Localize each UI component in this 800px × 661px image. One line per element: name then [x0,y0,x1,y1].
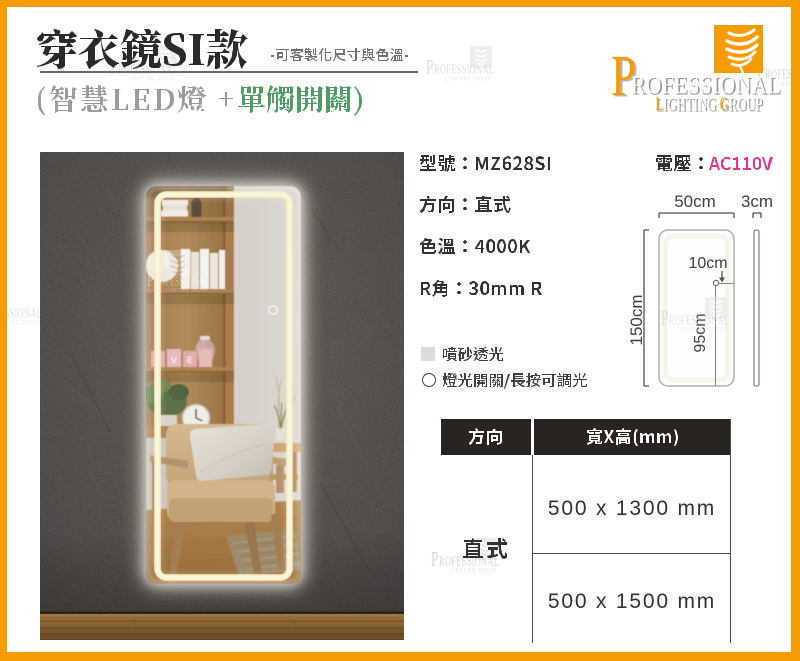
svg-text:10cm: 10cm [688,255,727,272]
svg-text:E: E [187,355,193,365]
svg-text:LIGHTING GROUP: LIGHTING GROUP [130,76,176,83]
svg-text:LIGHTING GROUP: LIGHTING GROUP [656,95,763,115]
svg-text:LIGHTING GROUP: LIGHTING GROUP [451,568,497,575]
svg-text:P: P [426,55,433,79]
svg-text:P: P [661,306,668,330]
svg-text:3cm: 3cm [741,192,773,211]
svg-text:LIGHTING GROUP: LIGHTING GROUP [681,327,727,334]
svg-text:LIGHTING GROUP: LIGHTING GROUP [166,287,208,293]
svg-text:LIGHTING GROUP: LIGHTING GROUP [446,76,492,83]
svg-text:V: V [171,355,177,365]
svg-text:50cm: 50cm [674,192,716,211]
svg-text:150cm: 150cm [627,294,646,345]
svg-text:P: P [431,547,438,571]
